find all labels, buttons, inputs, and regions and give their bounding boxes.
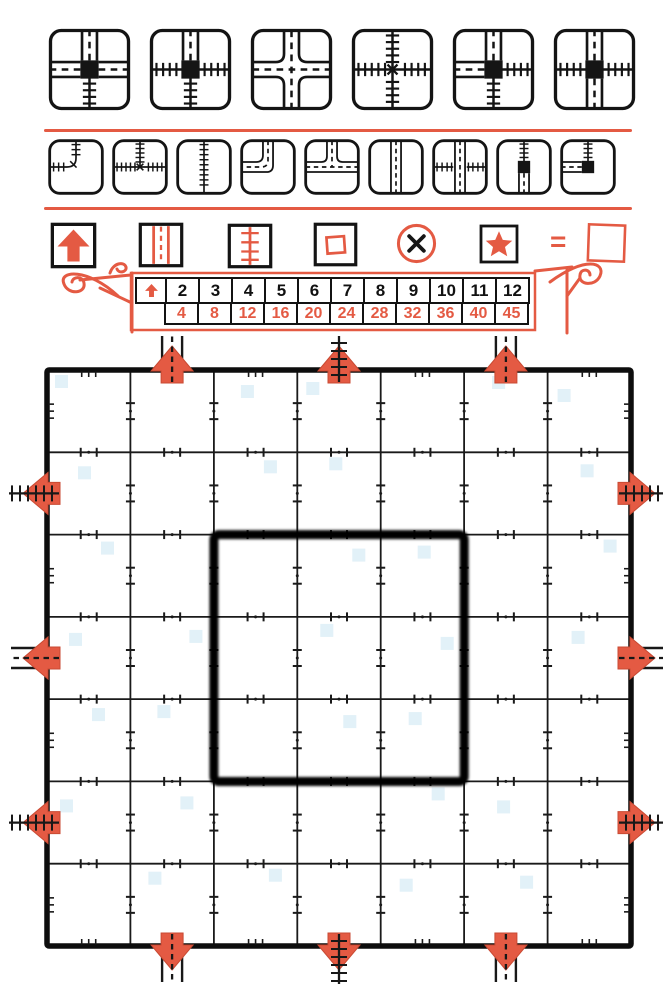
rail-curve-tile — [48, 139, 104, 195]
red-divider-top — [44, 129, 632, 132]
station-2highway-2rail-opposite-tile — [553, 28, 636, 111]
station-straight-tile — [496, 139, 552, 195]
points-cell: 24 — [329, 302, 364, 325]
equals-sign: = — [550, 226, 566, 258]
points-cell: 16 — [263, 302, 298, 325]
station-curve-tile — [560, 139, 616, 195]
points-cell: 20 — [296, 302, 331, 325]
points-cell: 32 — [395, 302, 430, 325]
exit-arrow-icon — [135, 277, 167, 304]
points-cell: 40 — [461, 302, 496, 325]
exits-connected-cell: 5 — [264, 277, 299, 304]
overpass-tile — [432, 139, 488, 195]
exits-connected-cell: 6 — [297, 277, 332, 304]
exits-connected-cell: 8 — [363, 277, 398, 304]
exits-connected-cell: 9 — [396, 277, 431, 304]
station-2highway-2rail-adjacent-tile — [452, 28, 535, 111]
highway-straight-tile — [368, 139, 424, 195]
station-1highway-3rail-tile — [149, 28, 232, 111]
points-cell: 12 — [230, 302, 265, 325]
points-cell: 28 — [362, 302, 397, 325]
red-divider-bottom — [44, 207, 632, 210]
station-3highway-1rail-tile — [48, 28, 131, 111]
exits-connected-cell: 3 — [198, 277, 233, 304]
exits-connected-cell: 11 — [462, 277, 497, 304]
points-row: 48121620242832364045 — [164, 302, 530, 325]
exit-score-table: 23456789101112 48121620242832364045 — [135, 277, 530, 325]
rail-crossing-tile — [351, 28, 434, 111]
special-tiles-row — [48, 28, 636, 111]
exits-connected-cell: 12 — [495, 277, 530, 304]
points-cell: 36 — [428, 302, 463, 325]
highway-curve-tile — [240, 139, 296, 195]
exits-connected-cell: 7 — [330, 277, 365, 304]
exits-connected-cell: 4 — [231, 277, 266, 304]
railroad-ink-sheet: = 23456789101112 48121620242832364045 — [0, 0, 663, 1000]
points-cell: 8 — [197, 302, 232, 325]
highway-crossroad-tile — [250, 28, 333, 111]
exits-connected-cell: 2 — [165, 277, 200, 304]
points-cell: 45 — [494, 302, 529, 325]
points-cell: 4 — [164, 302, 199, 325]
highway-junction-tile — [304, 139, 360, 195]
board — [0, 336, 663, 1000]
exits-connected-cell: 10 — [429, 277, 464, 304]
exits-connected-row: 23456789101112 — [135, 277, 530, 304]
rail-junction-tile — [112, 139, 168, 195]
dice-faces-row — [48, 139, 616, 195]
rail-straight-tile — [176, 139, 232, 195]
